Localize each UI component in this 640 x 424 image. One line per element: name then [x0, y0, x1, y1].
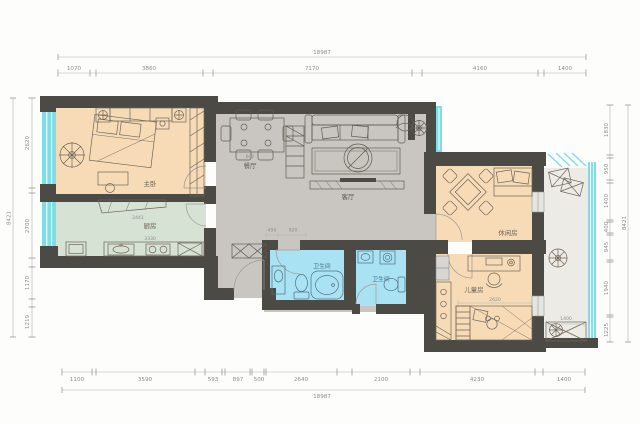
tv [340, 178, 376, 182]
floor-plan-canvas: 主卧 厨房 餐厅 客厅 卫生间 卫生间 休闲房 儿童房 600 2441 333… [0, 0, 640, 424]
room-living-dining [216, 106, 436, 252]
dim-left-0: 2620 [25, 135, 31, 150]
label-bath2: 卫生间 [372, 275, 390, 283]
dim-left-1: 2700 [25, 218, 31, 233]
label-kids: 儿童房 [464, 285, 483, 294]
dim-bottom-0: 1100 [70, 377, 85, 383]
plant-living [412, 120, 427, 136]
room-kids [436, 254, 532, 344]
dim-kitchen-width: 3330 [144, 236, 156, 242]
dim-dining: 600 [246, 154, 255, 160]
dim-right-6: 1225 [604, 322, 610, 337]
label-master-bedroom: 主卧 [144, 179, 157, 188]
dim-bottom-total: 18987 [313, 394, 331, 400]
dim-top-total: 18987 [313, 50, 331, 56]
label-leisure: 休闲房 [498, 228, 517, 237]
label-dining: 餐厅 [244, 161, 257, 170]
dim-bottom-2: 593 [208, 377, 219, 383]
dim-hall-b: 920 [289, 228, 298, 234]
dim-bottom-8: 1400 [557, 377, 572, 383]
label-bath1: 卫生间 [313, 262, 331, 270]
dim-left-3: 1219 [25, 314, 31, 329]
label-living: 客厅 [342, 192, 355, 201]
dim-right-1: 950 [604, 163, 610, 174]
dim-bottom-7: 4230 [470, 377, 485, 383]
dim-right-0: 1830 [604, 122, 610, 137]
dim-kids-bed: 2620 [489, 297, 501, 303]
dim-bottom-4: 500 [254, 377, 265, 383]
dim-right-4: 945 [604, 241, 610, 252]
dim-right-2: 1400 [604, 193, 610, 208]
dim-bottom: 1100 3590 593 897 500 2640 2100 4230 140… [62, 369, 585, 401]
dim-top: 18987 1070 3860 7170 4160 1400 [58, 50, 586, 77]
dim-bottom-3: 897 [233, 377, 244, 383]
dim-bottom-1: 3590 [138, 377, 153, 383]
dim-top-1: 3860 [142, 66, 157, 72]
label-kitchen: 厨房 [144, 221, 157, 230]
room-leisure [436, 166, 532, 242]
dim-top-3: 4160 [473, 66, 488, 72]
dim-bottom-6: 2100 [374, 377, 389, 383]
dim-left-2: 1170 [25, 275, 31, 290]
dim-right-5: 1940 [604, 280, 610, 295]
corner-window-hatch [548, 153, 586, 167]
dim-bottom-5: 2640 [294, 377, 309, 383]
dim-right: 1830 950 1400 400 945 1940 1225 8421 [604, 105, 631, 342]
dim-top-4: 1400 [558, 66, 573, 72]
dim-right-3: 400 [604, 221, 610, 232]
room-master-bedroom [56, 106, 206, 196]
dim-left: 2620 2700 1170 1219 8421 [7, 98, 36, 337]
dim-right-total: 8421 [622, 215, 628, 230]
dim-top-0: 1070 [67, 66, 82, 72]
dim-hall-a: 490 [268, 228, 277, 234]
dim-top-2: 7170 [305, 66, 320, 72]
dim-left-total: 8421 [7, 210, 13, 225]
room-bath1 [270, 250, 344, 306]
floor-plan: 主卧 厨房 餐厅 客厅 卫生间 卫生间 休闲房 儿童房 600 2441 333… [0, 0, 640, 424]
dim-kitchen-counter: 2441 [132, 215, 144, 221]
dim-balcony: 1400 [560, 316, 572, 322]
